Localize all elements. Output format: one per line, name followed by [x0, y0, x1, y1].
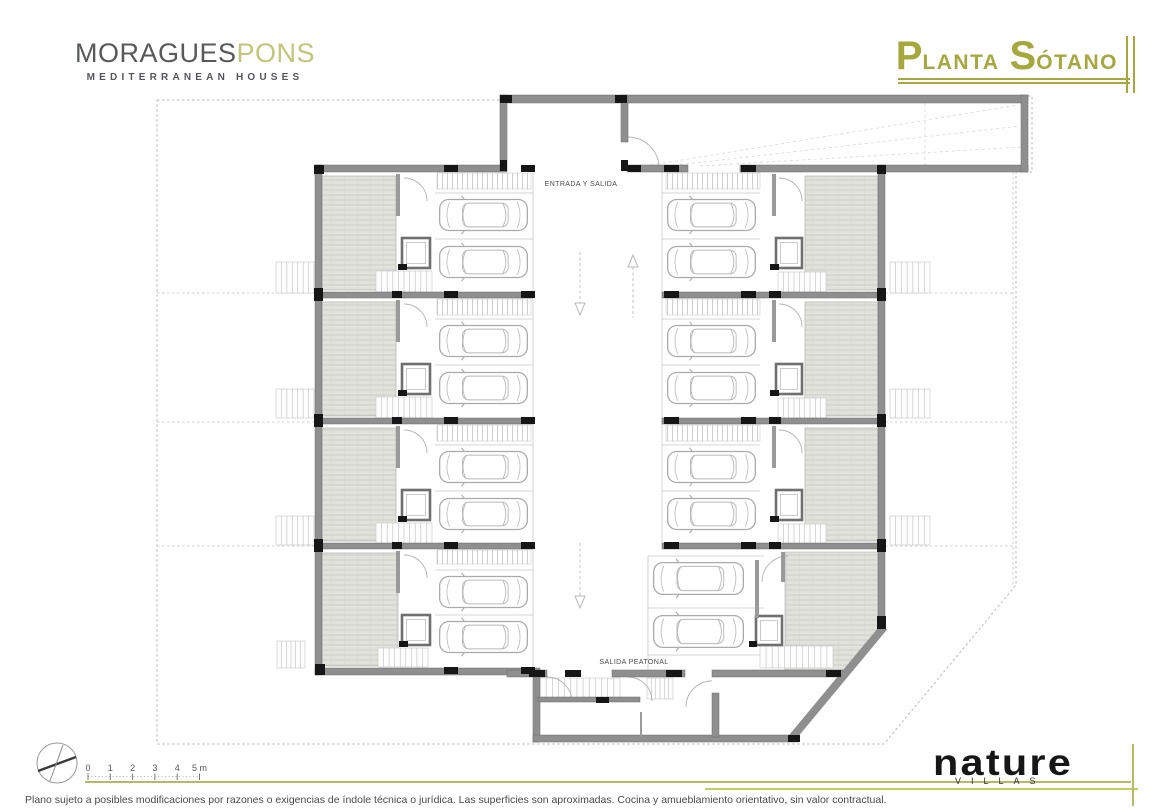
- structural-column: [770, 390, 779, 396]
- title-underline-1: [898, 78, 1130, 80]
- structural-column: [826, 670, 841, 677]
- wall: [878, 165, 885, 628]
- elevator-cab: [781, 495, 798, 516]
- structural-column: [392, 542, 402, 549]
- villas-underline: [705, 788, 1138, 790]
- structural-column: [314, 539, 323, 552]
- structural-column: [788, 735, 800, 742]
- structural-column: [398, 264, 407, 270]
- structural-column: [664, 542, 679, 549]
- door-swing-arc: [628, 137, 659, 168]
- elevator-cab: [407, 620, 426, 641]
- door-swing-arc: [404, 555, 427, 578]
- legal-disclaimer: Plano sujeto a posibles modificaciones p…: [25, 794, 886, 806]
- stairs: [276, 262, 314, 293]
- structural-column: [877, 288, 886, 301]
- elevator-cab: [407, 243, 426, 264]
- structural-column: [315, 664, 325, 675]
- wall: [315, 668, 540, 675]
- structural-column: [621, 160, 628, 171]
- partition-wall: [755, 560, 759, 618]
- wall: [712, 693, 719, 737]
- structural-column: [749, 641, 757, 647]
- structural-column: [392, 291, 402, 298]
- elevator-cab: [407, 369, 426, 390]
- brand-primary: MORAGUES: [75, 38, 237, 68]
- structural-column: [500, 160, 507, 171]
- moraguespons-logo: MORAGUESPONS MEDITERRANEAN HOUSES: [75, 38, 315, 83]
- title-initial-p: P: [896, 34, 923, 78]
- parked-car: [440, 573, 528, 611]
- parking-striped-band: [437, 173, 531, 189]
- plan-label: SALIDA PEATONAL: [599, 659, 668, 666]
- scale-bar-number: 0: [85, 763, 90, 773]
- nature-logo-sub: VILLAS: [955, 776, 1046, 786]
- structural-column: [741, 542, 756, 549]
- door-swing-arc: [779, 178, 802, 201]
- stairs: [778, 524, 826, 544]
- scale-bar-number: 3: [152, 763, 157, 773]
- parked-car: [668, 243, 756, 281]
- elevator-shaft: [776, 238, 802, 268]
- elevator-shaft: [402, 364, 430, 394]
- ramp-guide-line: [668, 126, 1020, 166]
- structural-column: [521, 165, 535, 172]
- door-swing-arc: [779, 304, 802, 327]
- ramp-guide-line: [645, 105, 1018, 166]
- structural-column: [877, 539, 886, 552]
- title-rest-lanta: LANTA: [922, 51, 999, 74]
- structural-column: [666, 670, 682, 677]
- scale-bar-number: 2: [130, 763, 135, 773]
- wall: [315, 418, 533, 424]
- stairs: [778, 272, 826, 292]
- scale-bar: 012345 m: [85, 763, 207, 780]
- structural-column: [770, 264, 779, 270]
- footer-vertical-accent: [1132, 744, 1134, 806]
- title-vertical-rule-1: [1126, 36, 1128, 93]
- elevator-cab: [407, 495, 426, 516]
- structural-column: [314, 414, 323, 427]
- stairs: [890, 262, 930, 293]
- structural-column: [565, 670, 581, 677]
- stairs-outline: [540, 678, 620, 699]
- stairs: [778, 398, 826, 418]
- parked-car: [668, 448, 756, 486]
- wall: [500, 95, 1028, 103]
- moraguespons-wordmark: MORAGUESPONS: [75, 38, 315, 69]
- structural-column: [769, 291, 781, 298]
- door-swing-arc: [779, 430, 802, 453]
- parked-car: [668, 369, 756, 407]
- structural-column: [399, 641, 408, 647]
- structural-column: [741, 417, 756, 424]
- title-vertical-rule-2: [1133, 36, 1135, 93]
- structural-column: [521, 542, 535, 549]
- structural-column: [529, 670, 545, 677]
- elevator-shaft: [402, 490, 430, 520]
- structural-column: [444, 291, 458, 298]
- structural-column: [521, 291, 535, 298]
- structural-column: [741, 165, 756, 172]
- stairs: [647, 678, 673, 699]
- door-swing-arc: [404, 430, 427, 453]
- parking-striped-band: [437, 425, 531, 441]
- wall: [315, 292, 533, 298]
- partition-wall: [781, 552, 785, 582]
- wall: [533, 675, 540, 742]
- parked-car: [668, 322, 756, 360]
- partition-wall: [396, 174, 400, 216]
- title-underline-2: [898, 82, 1130, 84]
- parked-car: [440, 618, 528, 656]
- stairs: [760, 646, 833, 668]
- parked-car: [440, 495, 528, 533]
- stairs-outline: [378, 648, 428, 667]
- wall: [538, 697, 640, 702]
- floor-plan-page: { "brand": {"name_primary":"MORAGUES","n…: [0, 0, 1154, 810]
- door-swing-arc: [686, 681, 712, 707]
- stairs: [276, 389, 314, 418]
- stairs-outline: [778, 524, 826, 544]
- title-initial-s: S: [1010, 34, 1037, 78]
- structural-column: [444, 542, 458, 549]
- wall: [712, 670, 843, 677]
- traffic-arrow: [628, 255, 638, 318]
- elevator-cab: [781, 243, 798, 264]
- parking-striped-band: [666, 425, 760, 441]
- parking-striped-band: [666, 173, 760, 189]
- elevator-shaft: [776, 364, 802, 394]
- door-swing-arc: [404, 178, 427, 201]
- partition-wall: [772, 426, 776, 468]
- structural-column: [500, 95, 512, 103]
- parking-striped-band: [666, 299, 760, 315]
- page-title: PLANTASÓTANO: [896, 34, 1118, 79]
- traffic-arrow: [575, 543, 585, 608]
- parked-car: [440, 322, 528, 360]
- structural-column: [769, 417, 781, 424]
- parked-car: [654, 612, 744, 651]
- structural-column: [398, 516, 407, 522]
- stairs: [376, 271, 432, 292]
- structural-column: [877, 165, 886, 174]
- stairs: [890, 389, 930, 418]
- structural-column: [314, 288, 323, 301]
- stairs: [378, 648, 428, 667]
- arrow-head-down: [575, 596, 585, 608]
- elevator-shaft: [402, 615, 430, 645]
- stairs-outline: [778, 272, 826, 292]
- door-swing-arc: [404, 304, 427, 327]
- wall: [315, 543, 533, 549]
- parking-striped-band: [437, 550, 531, 564]
- parked-car: [440, 196, 528, 234]
- title-rest-otano: ÓTANO: [1036, 51, 1118, 74]
- partition-wall: [396, 426, 400, 468]
- structural-column: [628, 165, 641, 172]
- elevator-shaft: [776, 490, 802, 520]
- partition-wall: [772, 300, 776, 342]
- scale-bar-number: 1: [108, 763, 113, 773]
- parked-car: [654, 559, 744, 598]
- parked-car: [440, 369, 528, 407]
- stairs: [276, 516, 314, 545]
- partition-wall: [396, 300, 400, 342]
- structural-column: [444, 165, 458, 172]
- structural-column: [877, 414, 886, 427]
- stairs-outline: [778, 398, 826, 418]
- wall: [533, 735, 798, 742]
- elevator-shaft: [756, 616, 782, 645]
- elevator-cab: [781, 369, 798, 390]
- structural-column: [770, 516, 779, 522]
- elevator-cab: [761, 621, 778, 641]
- elevator-shaft: [402, 238, 430, 268]
- scale-bar-number: 4: [175, 763, 180, 773]
- structural-column: [398, 390, 407, 396]
- wall: [315, 165, 500, 172]
- structural-column: [444, 667, 458, 674]
- stairs: [277, 641, 305, 668]
- parked-car: [668, 495, 756, 533]
- stairs: [376, 397, 432, 418]
- stairs: [890, 516, 930, 545]
- structural-column: [521, 417, 535, 424]
- structural-column: [741, 291, 756, 298]
- plan-label: ENTRADA Y SALIDA: [545, 181, 618, 188]
- arrow-head-down: [575, 303, 585, 315]
- structural-column: [596, 697, 609, 703]
- structural-column: [392, 417, 402, 424]
- parked-car: [440, 448, 528, 486]
- wall: [1021, 95, 1028, 172]
- parking-striped-band: [437, 299, 531, 315]
- structural-column: [877, 616, 886, 629]
- structural-column: [769, 542, 781, 549]
- compass-north-indicator: [37, 743, 77, 783]
- partition-wall: [396, 551, 400, 593]
- structural-column: [664, 291, 679, 298]
- partition-wall: [640, 712, 642, 737]
- brand-secondary: PONS: [237, 38, 316, 68]
- brand-tagline: MEDITERRANEAN HOUSES: [75, 72, 315, 83]
- structural-column: [314, 165, 324, 174]
- stairs: [540, 678, 620, 699]
- parked-car: [668, 196, 756, 234]
- structural-column: [664, 165, 679, 172]
- structural-column: [615, 95, 627, 103]
- structural-column: [444, 417, 458, 424]
- structural-column: [664, 417, 679, 424]
- partition-wall: [772, 174, 776, 216]
- arrow-head-up: [628, 255, 638, 267]
- floor-plan-drawing: ENTRADA Y SALIDASALIDA PEATONAL 012345 m: [0, 0, 1154, 810]
- stairs: [376, 523, 432, 544]
- parked-car: [440, 243, 528, 281]
- traffic-arrow: [575, 252, 585, 315]
- scale-bar-number: 5 m: [192, 763, 207, 773]
